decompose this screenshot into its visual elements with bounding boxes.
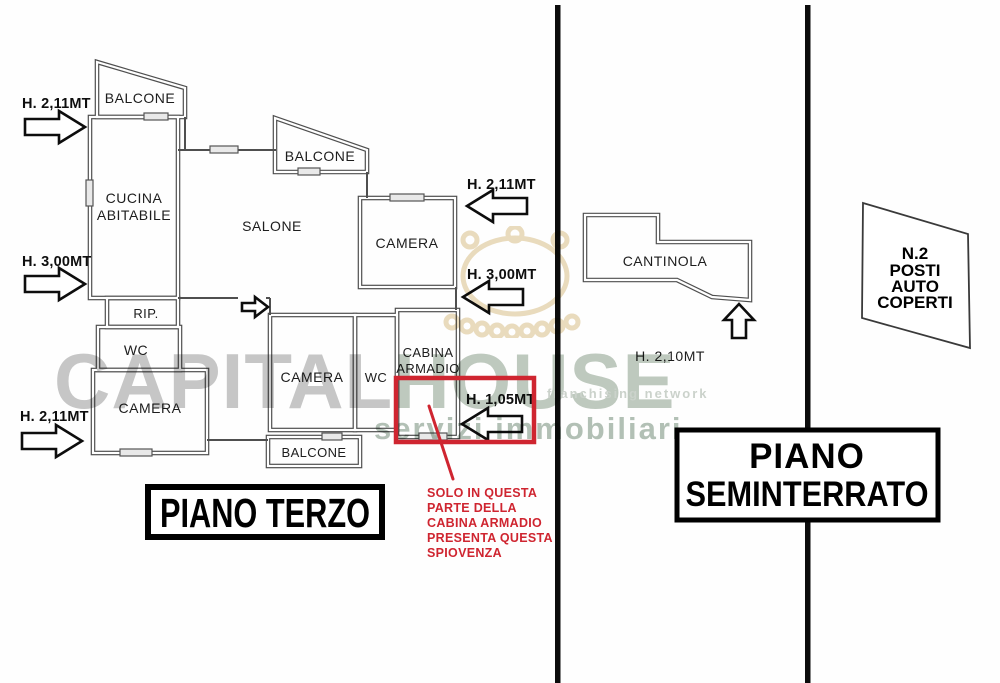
- note-line-2: PARTE DELLA: [427, 501, 517, 515]
- note-line-5: SPIOVENZA: [427, 546, 502, 560]
- spiovenza-note: SOLO IN QUESTA PARTE DELLA CABINA ARMADI…: [427, 486, 553, 560]
- red-annotations: SOLO IN QUESTA PARTE DELLA CABINA ARMADI…: [0, 0, 1000, 683]
- note-line-1: SOLO IN QUESTA: [427, 486, 537, 500]
- note-line-3: CABINA ARMADIO: [427, 516, 542, 530]
- note-line-4: PRESENTA QUESTA: [427, 531, 553, 545]
- floorplan-document: BALCONE CUCINA ABITABILE SALONE BALCONE …: [0, 0, 1000, 683]
- spiovenza-highlight-box: [396, 378, 534, 442]
